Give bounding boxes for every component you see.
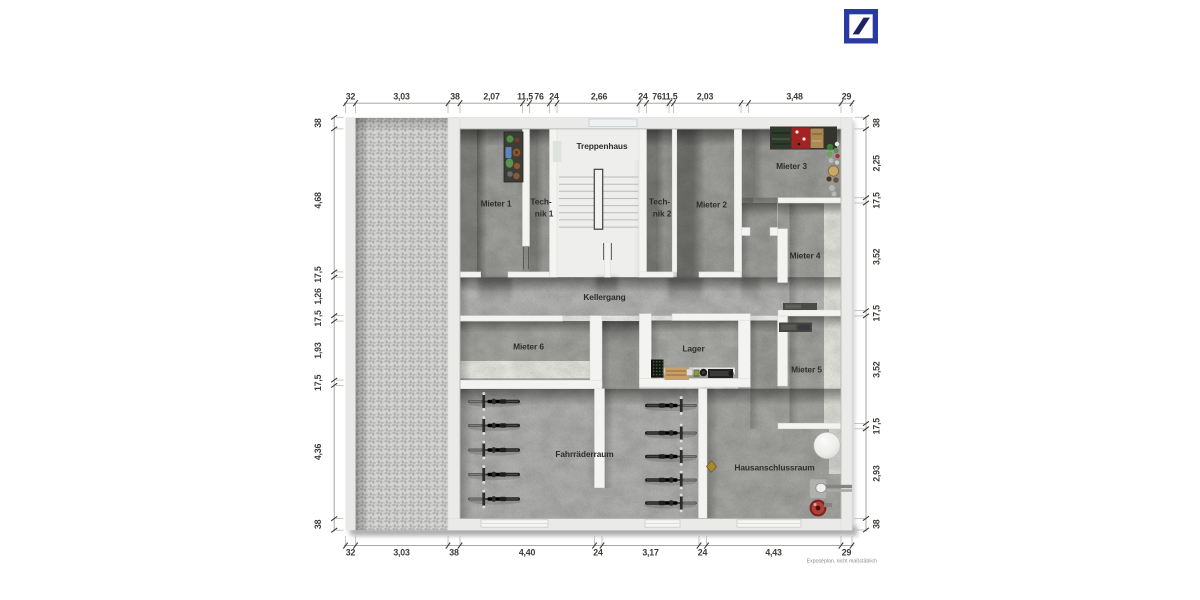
svg-text:17,5: 17,5 [872,418,882,435]
svg-text:Exposéplan, nicht maßstäblich: Exposéplan, nicht maßstäblich [807,559,877,565]
svg-text:11,5: 11,5 [517,92,533,102]
svg-text:Kellergang: Kellergang [583,292,625,302]
svg-text:Tech-: Tech- [530,197,552,207]
svg-text:11,5: 11,5 [662,92,678,102]
svg-text:Mieter 5: Mieter 5 [791,365,822,375]
svg-text:17,5: 17,5 [313,374,323,391]
svg-text:nik 1: nik 1 [535,209,554,219]
svg-text:32: 32 [346,548,356,558]
svg-text:1,26: 1,26 [313,288,323,305]
svg-text:76: 76 [652,92,662,102]
svg-text:2,07: 2,07 [483,92,500,102]
svg-text:Tech-: Tech- [649,197,671,207]
svg-text:Mieter 4: Mieter 4 [790,251,821,261]
svg-text:Hausanschlussraum: Hausanschlussraum [734,463,814,473]
svg-text:4,43: 4,43 [765,548,782,558]
svg-text:24: 24 [638,92,648,102]
svg-text:4,36: 4,36 [313,444,323,461]
svg-text:38: 38 [313,118,323,128]
svg-text:3,48: 3,48 [786,92,803,102]
svg-text:24: 24 [549,92,559,102]
svg-text:4,40: 4,40 [519,548,536,558]
svg-text:17,5: 17,5 [872,305,882,322]
svg-text:38: 38 [872,519,882,529]
svg-text:24: 24 [593,548,603,558]
svg-text:3,17: 3,17 [642,548,659,558]
svg-text:17,5: 17,5 [313,310,323,327]
svg-text:17,5: 17,5 [313,266,323,283]
svg-text:3,03: 3,03 [393,92,410,102]
svg-text:1,93: 1,93 [313,342,323,359]
svg-text:38: 38 [872,118,882,128]
svg-text:29: 29 [842,548,852,558]
svg-text:Treppenhaus: Treppenhaus [576,141,627,151]
svg-text:38: 38 [313,519,323,529]
svg-text:Mieter 3: Mieter 3 [776,161,807,171]
svg-text:3,03: 3,03 [393,548,410,558]
svg-text:2,66: 2,66 [591,92,608,102]
svg-text:17,5: 17,5 [872,192,882,209]
svg-text:24: 24 [698,548,708,558]
svg-text:Mieter 1: Mieter 1 [481,199,512,209]
svg-text:3,52: 3,52 [872,248,882,265]
svg-text:2,25: 2,25 [872,155,882,172]
svg-text:Mieter 2: Mieter 2 [696,200,727,210]
svg-text:29: 29 [842,92,852,102]
svg-text:3,52: 3,52 [872,361,882,378]
svg-text:Lager: Lager [682,344,705,354]
svg-text:Fahrräderraum: Fahrräderraum [555,449,613,459]
svg-text:2,03: 2,03 [697,92,714,102]
svg-text:38: 38 [450,92,460,102]
svg-text:nik 2: nik 2 [653,209,672,219]
svg-text:4,68: 4,68 [313,192,323,209]
svg-text:Mieter 6: Mieter 6 [513,342,544,352]
svg-text:32: 32 [346,92,356,102]
svg-text:38: 38 [449,548,459,558]
svg-text:2,93: 2,93 [872,465,882,482]
svg-text:76: 76 [534,92,544,102]
